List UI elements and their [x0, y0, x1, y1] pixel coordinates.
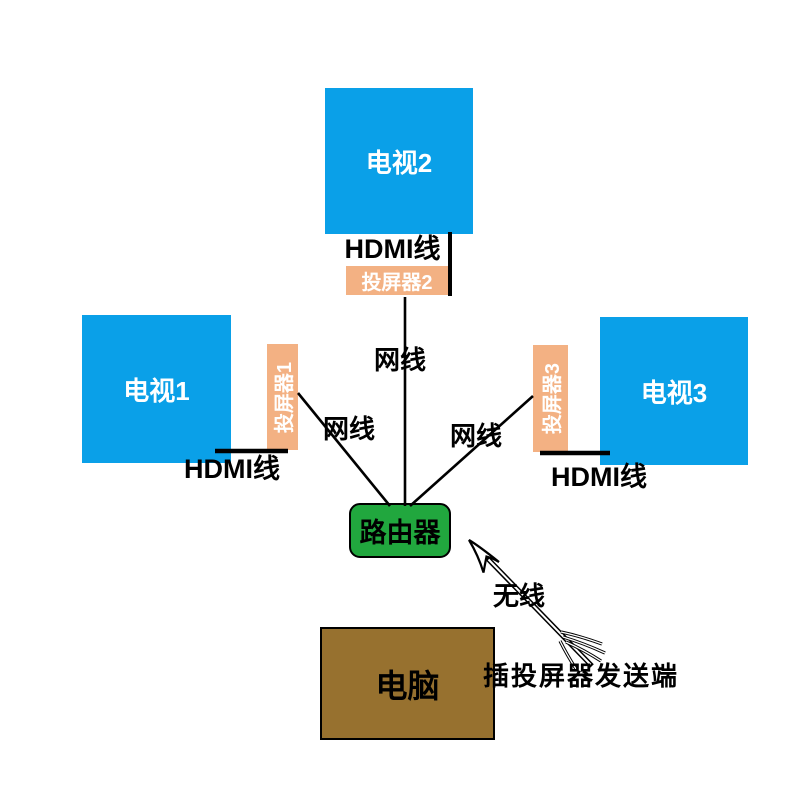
network-cable-3 — [410, 396, 533, 506]
node-caster3: 投屏器3 — [533, 345, 568, 452]
lan2-cable-label: 网线 — [370, 347, 430, 374]
wireless-arrow-shaft-inner — [489, 560, 591, 665]
tv1-label: 电视1 — [123, 371, 189, 408]
hdmi3-cable-label: HDMI线 — [543, 463, 655, 491]
arrow-feather-1 — [561, 632, 602, 644]
arrow-feather-1-inner — [561, 632, 602, 644]
wireless-arrow-shaft — [487, 558, 592, 666]
node-caster2: 投屏器2 — [346, 266, 448, 295]
arrow-feather-2 — [563, 637, 605, 653]
lan1-cable-label: 网线 — [318, 416, 380, 443]
node-router: 路由器 — [349, 503, 451, 558]
node-caster1: 投屏器1 — [267, 344, 298, 450]
node-computer: 电脑 — [320, 627, 495, 740]
sender-annotation: 插投屏器发送端 — [483, 663, 679, 690]
node-tv2: 电视2 — [325, 88, 473, 234]
caster2-label: 投屏器2 — [361, 266, 432, 295]
computer-label: 电脑 — [375, 661, 439, 707]
hdmi1-cable-label: HDMI线 — [176, 455, 288, 483]
hdmi2-cable-label: HDMI线 — [330, 235, 455, 263]
wireless-arrow-head — [469, 540, 499, 573]
topology-diagram: 电视2 电视1 电视3 投屏器2 投屏器1 投屏器3 路由器 电脑 HDMI线 … — [0, 0, 800, 800]
tv2-label: 电视2 — [366, 143, 432, 180]
arrow-feather-3 — [566, 642, 601, 661]
arrow-feather-3-inner — [566, 642, 601, 661]
lan3-cable-label: 网线 — [446, 423, 506, 450]
arrow-feather-2-inner — [563, 637, 605, 653]
caster1-label: 投屏器1 — [268, 361, 297, 432]
caster3-label: 投屏器3 — [536, 363, 565, 434]
network-cable-1 — [298, 393, 390, 506]
tv3-label: 电视3 — [641, 373, 707, 410]
wireless-label: 无线 — [489, 583, 549, 610]
node-tv3: 电视3 — [600, 317, 748, 465]
router-label: 路由器 — [360, 511, 441, 550]
node-tv1: 电视1 — [82, 315, 231, 463]
